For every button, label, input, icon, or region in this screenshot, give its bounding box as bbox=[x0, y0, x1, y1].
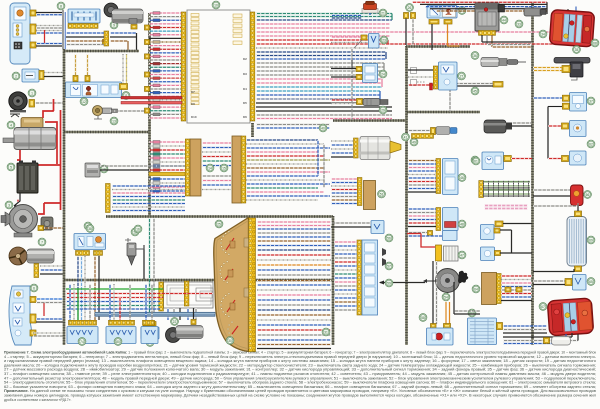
svg-text:54: 54 bbox=[444, 295, 448, 299]
svg-text:13: 13 bbox=[112, 119, 116, 123]
svg-text:30: 30 bbox=[228, 339, 232, 343]
svg-text:38: 38 bbox=[88, 227, 92, 231]
svg-text:68: 68 bbox=[593, 41, 597, 45]
svg-text:59: 59 bbox=[387, 281, 391, 285]
svg-text:49: 49 bbox=[412, 140, 416, 144]
svg-text:5: 5 bbox=[10, 165, 12, 169]
svg-text:56: 56 bbox=[387, 236, 391, 240]
svg-text:8: 8 bbox=[60, 4, 62, 8]
svg-text:K7: K7 bbox=[191, 90, 195, 94]
svg-text:19: 19 bbox=[102, 167, 106, 171]
svg-text:66: 66 bbox=[586, 193, 590, 197]
svg-text:K2: K2 bbox=[243, 57, 247, 61]
svg-text:44: 44 bbox=[502, 18, 506, 22]
svg-text:2: 2 bbox=[15, 74, 17, 78]
svg-text:26: 26 bbox=[408, 6, 412, 10]
svg-text:4: 4 bbox=[10, 123, 12, 127]
svg-text:24: 24 bbox=[381, 72, 385, 76]
svg-text:36: 36 bbox=[473, 54, 477, 58]
svg-text:53: 53 bbox=[380, 192, 384, 196]
svg-text:80: 80 bbox=[116, 340, 120, 344]
svg-text:46: 46 bbox=[460, 176, 464, 180]
svg-text:29: 29 bbox=[381, 108, 385, 112]
svg-text:K10: K10 bbox=[191, 115, 197, 119]
svg-text:57: 57 bbox=[387, 264, 391, 268]
svg-text:64: 64 bbox=[474, 287, 478, 291]
svg-text:31: 31 bbox=[324, 330, 328, 334]
svg-text:14: 14 bbox=[208, 166, 212, 170]
svg-text:K8: K8 bbox=[191, 102, 195, 106]
svg-text:6: 6 bbox=[33, 286, 35, 290]
svg-text:65: 65 bbox=[589, 280, 593, 284]
svg-text:34: 34 bbox=[541, 32, 545, 36]
svg-text:69: 69 bbox=[589, 238, 593, 242]
svg-text:47: 47 bbox=[460, 253, 464, 257]
svg-text:зажигания даны номера цилиндро: зажигания даны номера цилиндров, провода… bbox=[4, 394, 596, 398]
svg-text:16: 16 bbox=[136, 227, 140, 231]
svg-text:K3: K3 bbox=[243, 72, 247, 76]
svg-text:62: 62 bbox=[589, 142, 593, 146]
svg-text:K5: K5 bbox=[243, 101, 247, 105]
svg-text:10: 10 bbox=[214, 3, 218, 7]
svg-text:9: 9 bbox=[113, 23, 115, 27]
svg-text:61: 61 bbox=[474, 159, 478, 163]
svg-text:25: 25 bbox=[217, 222, 221, 226]
svg-text:21: 21 bbox=[381, 11, 385, 15]
svg-text:дробь в соответствии с каталог: дробь в соответствии с каталогом «РД17». bbox=[4, 398, 71, 402]
svg-text:74: 74 bbox=[80, 340, 84, 344]
svg-text:K6: K6 bbox=[243, 115, 247, 119]
svg-text:35: 35 bbox=[575, 48, 579, 52]
svg-text:15: 15 bbox=[222, 166, 226, 170]
svg-text:37: 37 bbox=[589, 99, 593, 103]
svg-text:7: 7 bbox=[41, 240, 43, 244]
svg-text:45: 45 bbox=[473, 89, 477, 93]
svg-text:27: 27 bbox=[460, 74, 464, 78]
svg-text:58: 58 bbox=[421, 316, 425, 320]
svg-text:1: 1 bbox=[31, 91, 33, 95]
svg-text:33: 33 bbox=[517, 22, 521, 26]
svg-text:40: 40 bbox=[321, 126, 325, 130]
svg-text:12: 12 bbox=[82, 100, 86, 104]
svg-text:3: 3 bbox=[8, 203, 10, 207]
svg-text:67: 67 bbox=[541, 305, 545, 309]
svg-text:K4: K4 bbox=[243, 87, 247, 91]
svg-text:48: 48 bbox=[460, 222, 464, 226]
svg-text:63: 63 bbox=[470, 311, 474, 315]
svg-text:23: 23 bbox=[382, 38, 386, 42]
svg-text:41: 41 bbox=[404, 135, 408, 139]
svg-text:22: 22 bbox=[173, 320, 177, 324]
